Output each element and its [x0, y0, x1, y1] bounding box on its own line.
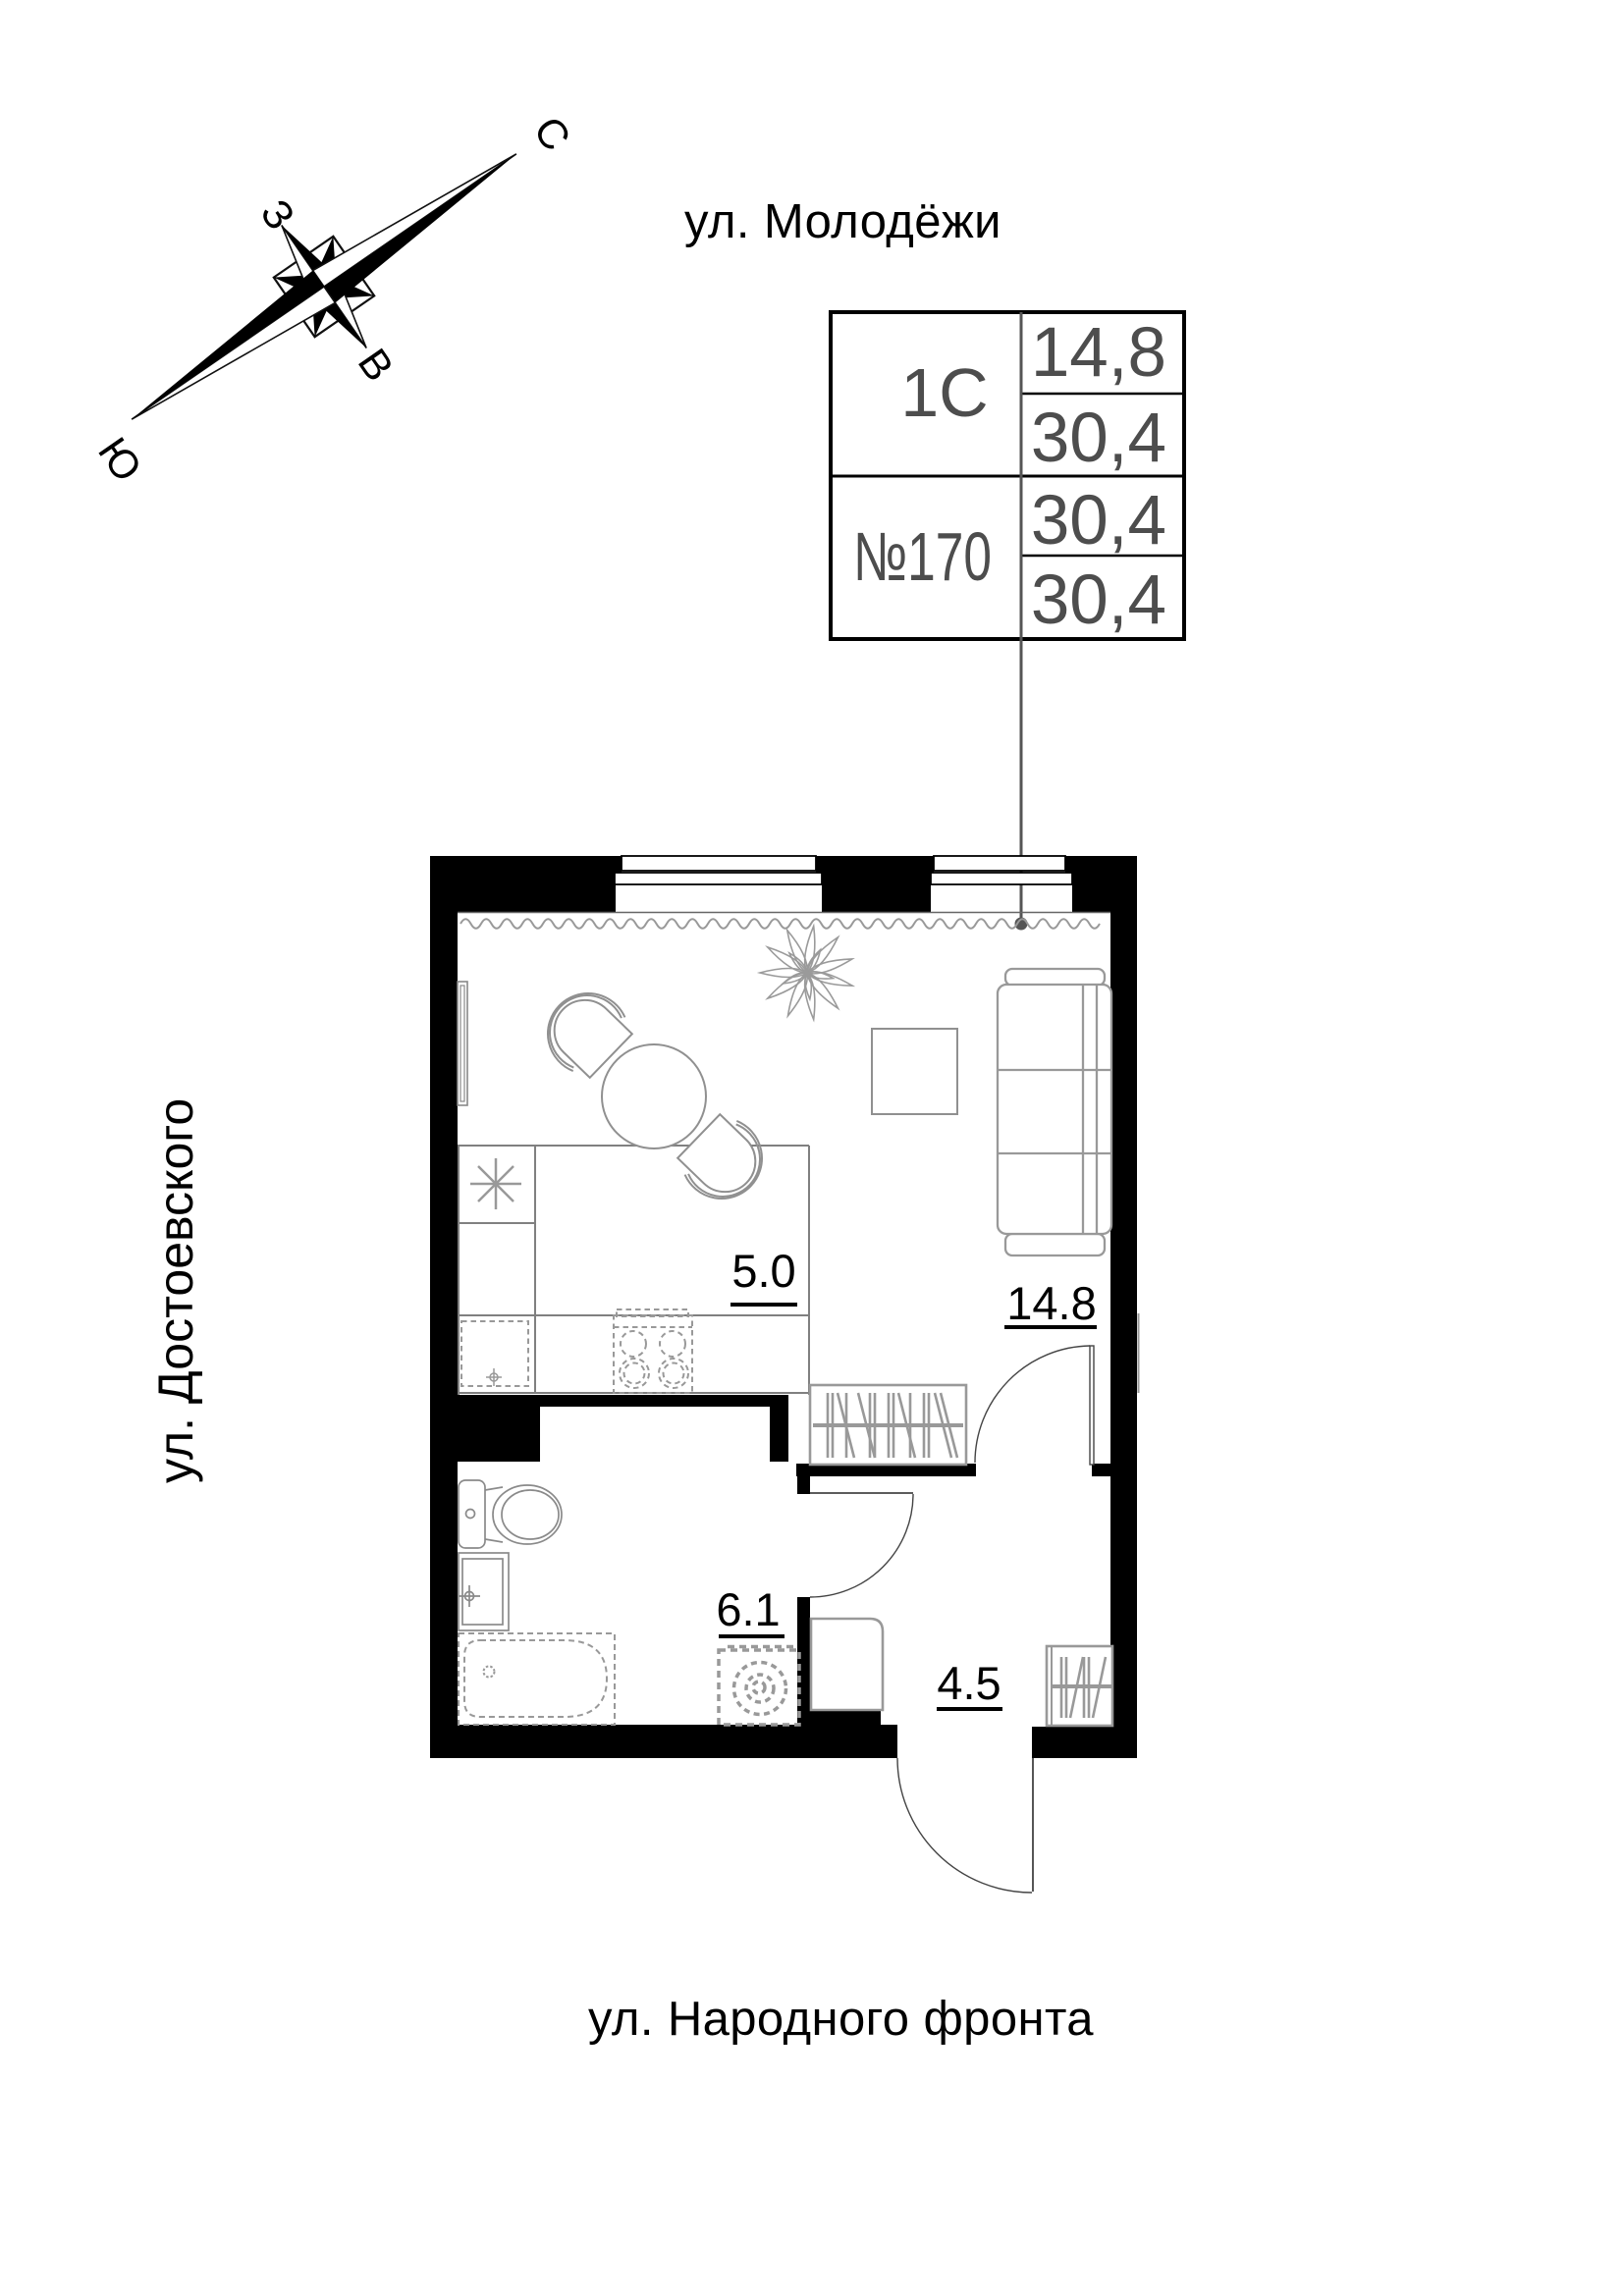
svg-text:30,4: 30,4 — [1031, 482, 1166, 560]
svg-text:ул. Народного фронта: ул. Народного фронта — [588, 1993, 1094, 2046]
svg-text:30,4: 30,4 — [1031, 561, 1166, 639]
svg-text:1С: 1С — [900, 354, 988, 431]
svg-text:14,8: 14,8 — [1031, 314, 1166, 392]
svg-text:5.0: 5.0 — [731, 1245, 795, 1297]
svg-text:4.5: 4.5 — [937, 1657, 1001, 1709]
svg-text:30,4: 30,4 — [1031, 400, 1166, 477]
svg-text:№170: №170 — [853, 518, 992, 595]
svg-text:6.1: 6.1 — [716, 1583, 780, 1635]
svg-text:ул. Достоевского: ул. Достоевского — [148, 1098, 203, 1483]
svg-text:ул. Молодёжи: ул. Молодёжи — [684, 195, 1001, 248]
svg-text:14.8: 14.8 — [1006, 1277, 1096, 1329]
